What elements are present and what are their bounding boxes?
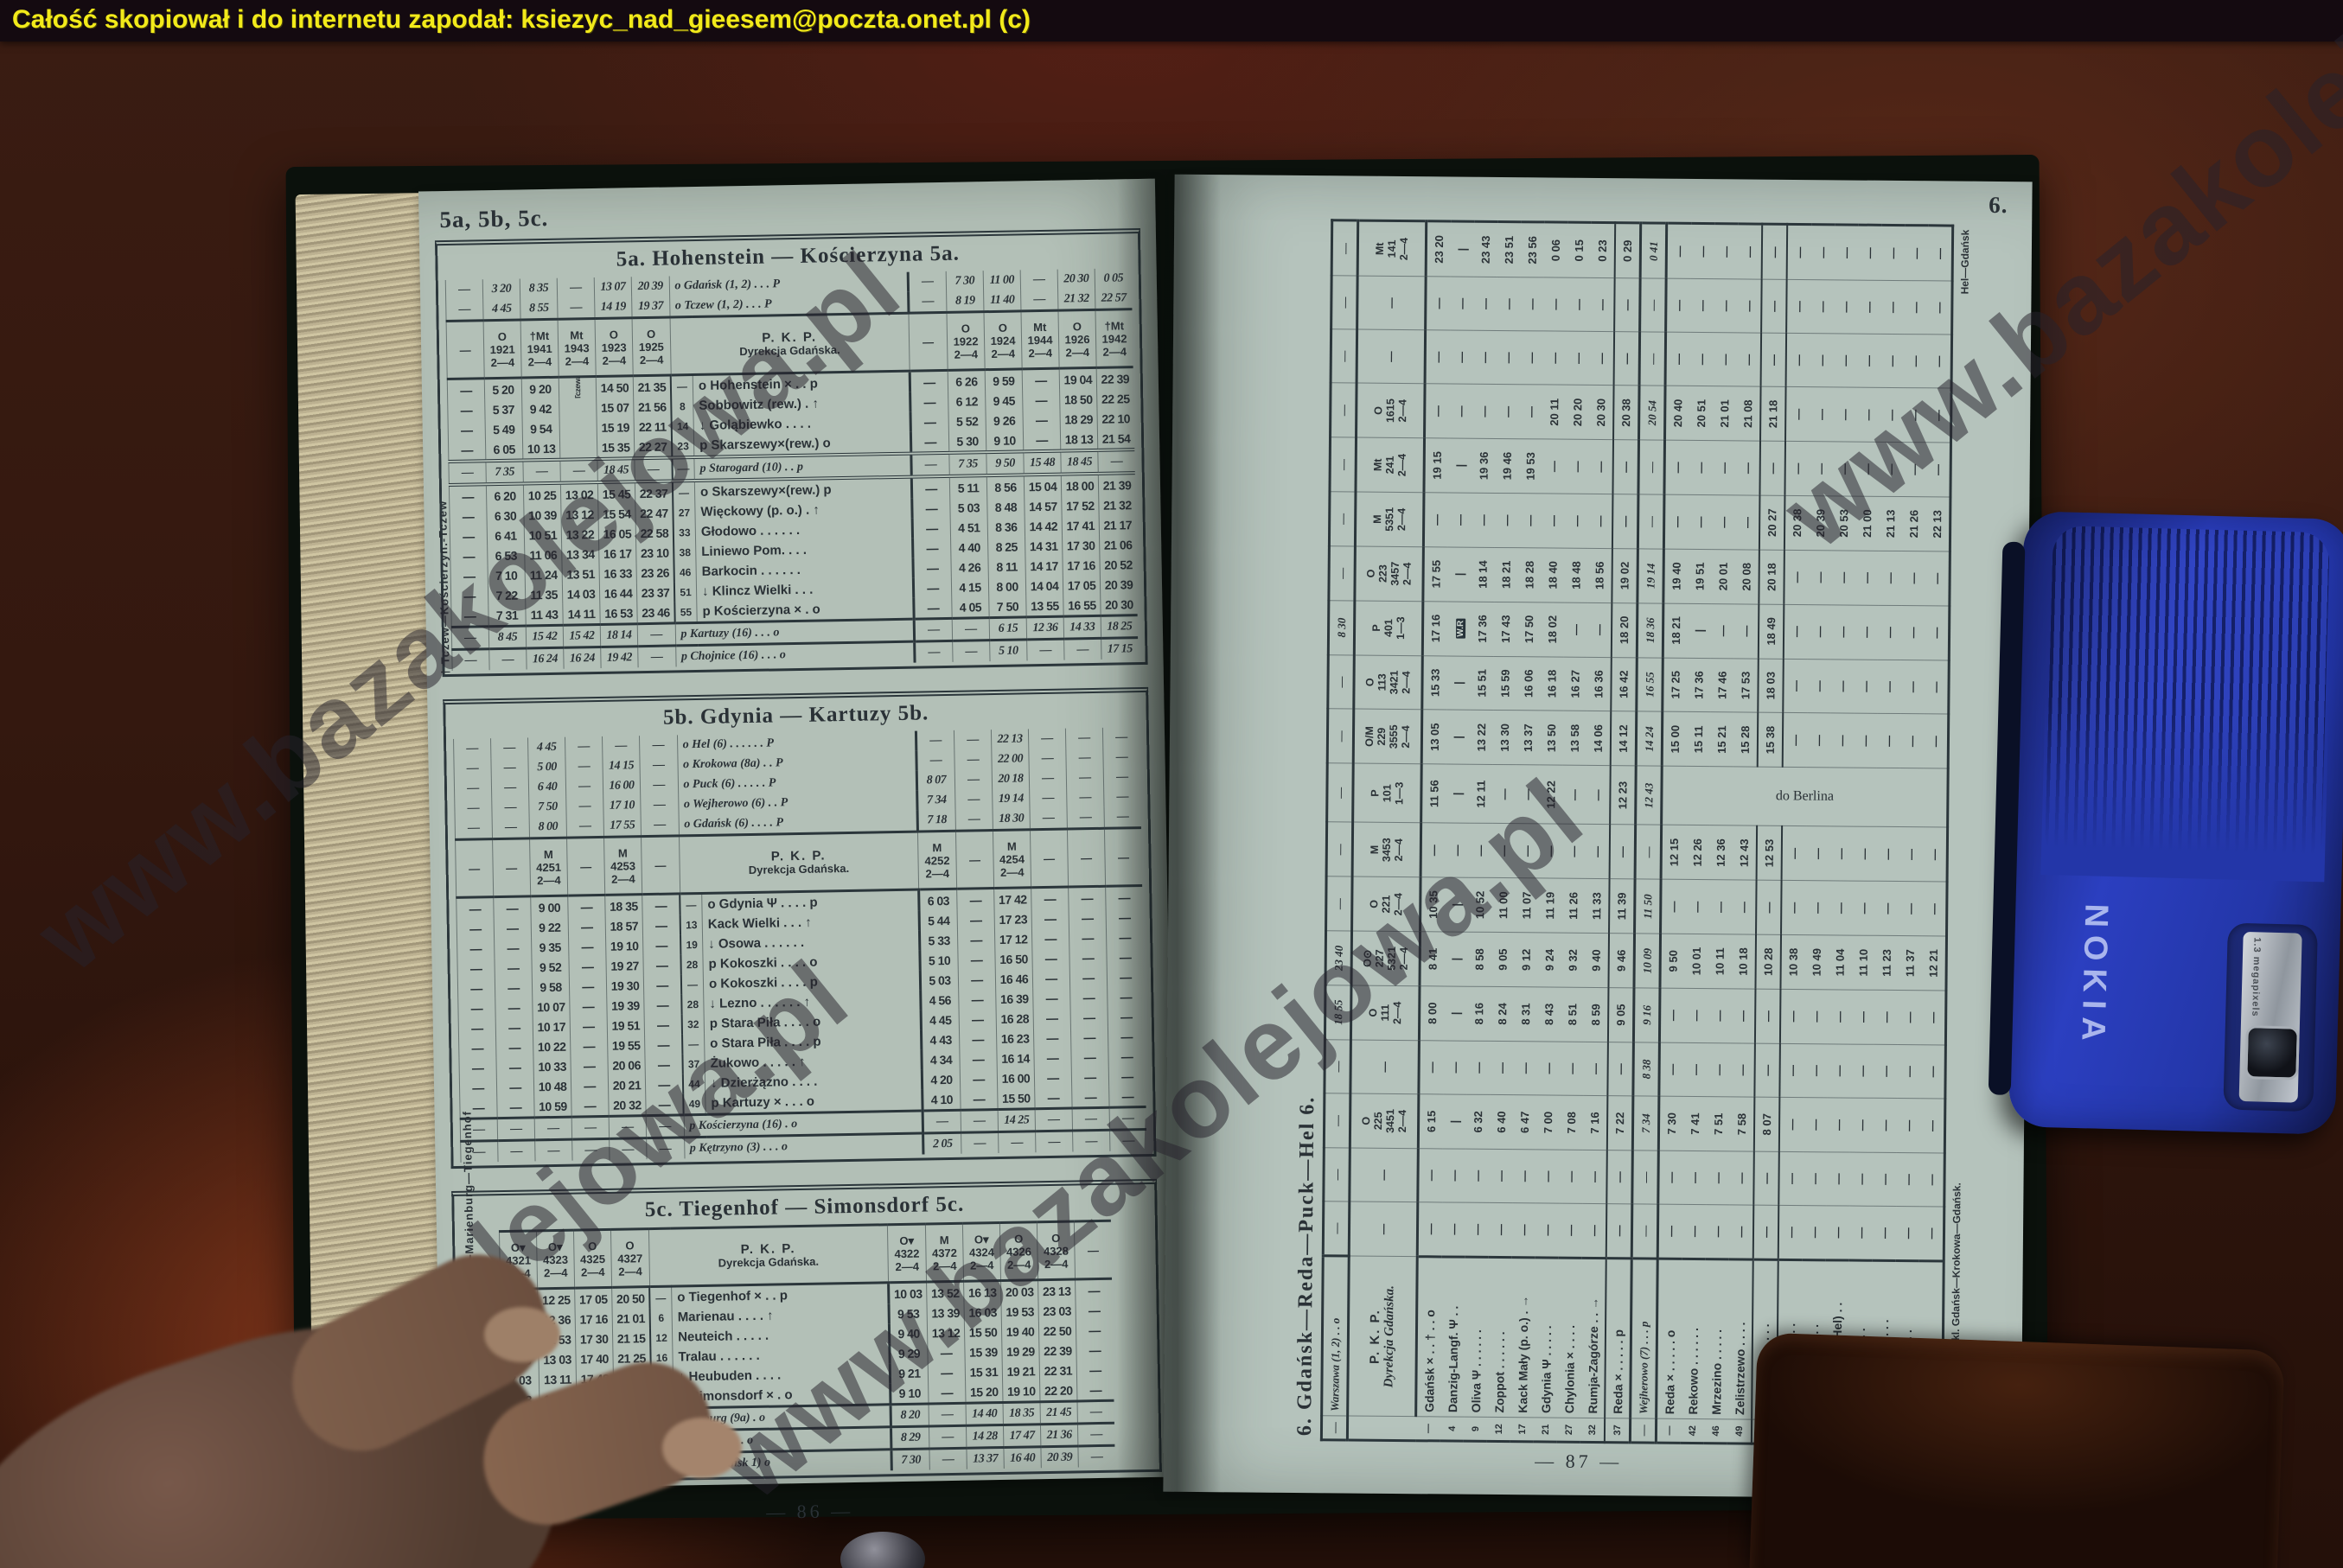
time-cell: — [1804, 990, 1829, 1044]
train-header-cell: — [1350, 1148, 1419, 1202]
time-cell: 15 31 [965, 1361, 1002, 1382]
time-cell: 17 41 [1062, 515, 1099, 536]
time-cell: 7 30 [891, 1449, 929, 1470]
time-cell: 17 42 [994, 888, 1031, 909]
time-cell: — [1808, 604, 1832, 659]
time-cell: — [1489, 1149, 1513, 1202]
time-cell: — [1327, 709, 1354, 763]
train-header-line: 4254 [994, 852, 1029, 866]
time-cell: 18 14 [1471, 547, 1495, 602]
train-header-line: O [612, 1239, 648, 1252]
time-cell: — [491, 757, 528, 778]
time-cell: — [638, 646, 676, 667]
time-cell: 20 30 [1057, 269, 1095, 290]
train-header-line: O [986, 321, 1020, 335]
time-cell: 23 43 [1474, 221, 1498, 277]
time-cell: — [1853, 826, 1877, 881]
time-cell: — [961, 1110, 998, 1133]
time-cell: — [1900, 660, 1925, 714]
time-cell: 8 07 [1754, 1097, 1780, 1151]
train-header-line: 1921 [485, 342, 520, 356]
time-cell: — [1927, 281, 1952, 335]
time-cell: — [1734, 604, 1759, 659]
time-cell: — [1064, 638, 1101, 660]
time-cell: — [448, 399, 485, 420]
train-header-line: 229 [1376, 710, 1389, 763]
time-cell: — [923, 1110, 961, 1133]
time-cell: 19 36 [1472, 438, 1496, 493]
time-cell: — [1635, 825, 1662, 879]
time-cell: — [957, 929, 994, 950]
train-header-line: O [948, 322, 983, 335]
time-cell: 6 40 [528, 777, 565, 798]
time-cell: 12 53 [1757, 825, 1783, 880]
train-header-cell: — [642, 836, 680, 895]
train-header-line: O▾ [889, 1233, 924, 1247]
time-cell: 11 40 [984, 290, 1021, 311]
time-cell: — [1708, 880, 1733, 934]
time-cell: — [999, 1131, 1036, 1153]
time-cell: — [1881, 225, 1906, 280]
time-cell: — [914, 618, 952, 641]
time-cell: — [1034, 1048, 1071, 1068]
train-header-line: 1941 [522, 341, 557, 355]
train-header-cell: †Mt19412—4 [520, 319, 559, 378]
time-cell: 5 52 [948, 411, 986, 431]
time-cell: — [1032, 968, 1069, 989]
table-6-margin-note: Hel—Gdańsk [1958, 230, 1971, 295]
time-cell: 9 12 [1514, 933, 1538, 987]
time-cell: | [1444, 986, 1468, 1041]
time-cell: 21 45 [1040, 1401, 1077, 1425]
time-cell: — [1877, 714, 1901, 768]
time-cell: 20 08 [1734, 550, 1759, 604]
km-cell: 51 [674, 582, 697, 602]
time-cell: — [1783, 659, 1808, 713]
km-cell: 21 [1534, 1418, 1557, 1442]
time-cell: — [1874, 1098, 1898, 1152]
time-cell: — [1784, 604, 1809, 659]
time-cell: 10 59 [534, 1096, 571, 1118]
time-cell: — [916, 730, 954, 751]
train-header-line: O [1364, 546, 1377, 600]
time-cell: — [1070, 987, 1108, 1008]
time-cell: — [1830, 713, 1855, 768]
km-cell: — [1630, 1418, 1656, 1443]
km-cell: 38 [674, 542, 696, 562]
time-cell: — [1588, 440, 1613, 494]
time-cell: 5 03 [950, 497, 987, 518]
time-cell: — [1738, 224, 1763, 279]
train-header-line: O [1372, 384, 1385, 437]
time-cell: — [1711, 603, 1735, 658]
time-cell: — [1778, 1151, 1804, 1205]
time-cell: z Tczewa [559, 376, 596, 398]
time-cell: — [1520, 331, 1544, 385]
time-cell: — [1331, 383, 1357, 437]
time-cell: — [449, 461, 486, 485]
time-cell: — [910, 411, 948, 432]
time-cell: — [908, 271, 946, 292]
time-cell: — [1779, 1043, 1804, 1098]
time-cell: 19 51 [607, 1015, 644, 1036]
time-cell: 18 00 [1061, 474, 1098, 496]
time-cell: — [643, 934, 681, 955]
time-cell: — [1031, 887, 1069, 908]
train-header-cell: O22334572—4 [1355, 546, 1424, 602]
time-cell: 18 21 [1494, 547, 1518, 602]
station-cell: Wejherowo (7) . . . p [1631, 1259, 1658, 1419]
station-cell: Gdańsk × . . † . . o [1416, 1257, 1442, 1418]
time-cell: 22 13 [1925, 497, 1950, 551]
time-cell: 0 41 [1640, 223, 1667, 278]
time-cell: — [1878, 605, 1902, 660]
train-header-line: 4253 [605, 859, 640, 873]
time-cell: — [1076, 1300, 1113, 1321]
train-header-line: Mt [1374, 222, 1387, 276]
train-header-cell: M42522—4 [917, 831, 956, 889]
time-cell: — [1786, 334, 1811, 387]
time-cell: 22 50 [1038, 1320, 1076, 1341]
time-cell: — [1690, 333, 1714, 386]
time-cell: — [566, 816, 603, 838]
time-cell: — [565, 776, 603, 797]
time-cell: — [1069, 967, 1107, 988]
time-cell: — [1029, 768, 1066, 789]
time-cell: 18 45 [1061, 450, 1098, 475]
time-cell: 13 50 [1540, 711, 1564, 765]
time-cell: — [1855, 605, 1879, 660]
time-cell: — [1756, 880, 1782, 934]
train-header-line: 2—4 [1396, 384, 1409, 437]
time-cell: — [1029, 749, 1066, 769]
time-cell: — [1735, 441, 1760, 495]
time-cell: — [1663, 494, 1689, 549]
time-cell: — [641, 814, 679, 836]
page-87-corner-label: 6. [1989, 192, 2008, 219]
time-cell: — [1022, 368, 1059, 390]
time-cell: — [1830, 659, 1855, 713]
time-cell: 19 14 [1638, 549, 1664, 603]
km-cell: — [1415, 1417, 1440, 1441]
time-cell: 21 15 [612, 1328, 650, 1348]
page-87-number: — 87 — [1492, 1450, 1665, 1474]
time-cell: 10 49 [1804, 935, 1829, 990]
train-header-line: 113 [1376, 655, 1389, 709]
time-cell: — [1426, 277, 1451, 330]
time-cell: 17 40 [576, 1348, 613, 1369]
time-cell: — [457, 958, 495, 978]
time-cell: 11 33 [1585, 879, 1610, 934]
time-cell: 10 48 [533, 1076, 571, 1097]
time-cell: 19 42 [601, 647, 638, 668]
time-cell: 12 23 [1610, 766, 1636, 825]
time-cell: 3 20 [482, 279, 520, 300]
time-cell: — [1657, 1204, 1682, 1259]
km-cell: — [681, 974, 704, 994]
train-header-line: O [485, 329, 520, 343]
time-cell: — [1682, 1151, 1707, 1204]
time-cell: 2 05 [923, 1132, 961, 1154]
time-cell: — [958, 969, 995, 990]
time-cell: 14 25 [998, 1109, 1035, 1132]
time-cell: 13 30 [1493, 711, 1517, 765]
time-cell: — [1850, 1044, 1874, 1099]
time-cell: 9 35 [532, 937, 569, 958]
time-cell: — [454, 778, 491, 799]
train-header-line: 3451 [1384, 1094, 1397, 1148]
time-cell: 19 51 [1688, 549, 1712, 603]
time-cell: — [1496, 385, 1520, 439]
time-cell: — [1735, 495, 1760, 550]
time-cell: — [1873, 1152, 1897, 1206]
time-cell: — [1066, 748, 1103, 768]
time-cell [559, 398, 597, 418]
hand-fingernail [662, 1418, 742, 1478]
time-cell: 10 33 [533, 1056, 571, 1077]
time-cell: — [1034, 1068, 1071, 1088]
time-cell: 17 55 [603, 815, 641, 837]
train-header-line: M [531, 847, 565, 861]
time-cell: — [1442, 1149, 1466, 1202]
hand-fingernail [484, 1307, 560, 1362]
train-header-cell: O19212—4 [483, 320, 521, 379]
time-cell: 21 08 [1736, 386, 1761, 441]
time-cell: 17 16 [575, 1309, 612, 1329]
time-cell: 6 03 [919, 889, 957, 910]
station-cell: Mrzezino . . . . . [1704, 1259, 1729, 1420]
time-cell: — [1023, 430, 1060, 452]
time-cell: — [1520, 277, 1544, 331]
time-cell: — [1582, 1150, 1607, 1203]
time-cell: — [911, 476, 949, 499]
time-cell: — [1730, 1043, 1755, 1098]
time-cell: — [1077, 1380, 1114, 1401]
time-cell: — [913, 558, 951, 578]
time-cell: — [1874, 990, 1899, 1044]
time-cell: — [954, 730, 991, 750]
time-cell: — [1666, 223, 1691, 278]
time-cell: 14 31 [1025, 536, 1063, 557]
train-header-line: M [994, 839, 1029, 853]
time-cell: 6 32 [1466, 1094, 1491, 1149]
time-cell: — [954, 769, 992, 790]
time-cell: — [1783, 713, 1808, 768]
time-cell: 9 42 [522, 398, 559, 419]
time-cell: — [1327, 763, 1354, 822]
time-cell: — [1732, 880, 1757, 934]
time-cell: 4 45 [483, 299, 520, 321]
time-cell: 16 18 [1540, 656, 1564, 711]
time-cell: 4 51 [950, 517, 987, 538]
time-cell: 16 39 [996, 988, 1033, 1009]
time-cell: — [1473, 330, 1497, 384]
time-cell: 8 55 [520, 298, 558, 320]
time-cell: — [456, 918, 494, 939]
km-cell: 9 [1464, 1418, 1487, 1442]
time-cell: — [1761, 333, 1787, 386]
agency-cell: P. K. P.Dyrekcja Gdańska. [648, 1225, 889, 1287]
time-cell: — [1535, 1203, 1560, 1258]
time-cell: — [1737, 279, 1762, 333]
time-cell: 17 12 [994, 928, 1031, 949]
time-cell: 16 24 [527, 647, 564, 669]
time-cell: 18 56 [1587, 548, 1612, 602]
time-cell: — [1714, 279, 1738, 333]
time-cell: — [911, 453, 949, 477]
time-cell: 22 13 [991, 729, 1028, 749]
time-cell: — [1590, 277, 1615, 331]
train-header-line: 3421 [1388, 655, 1401, 709]
time-cell: — [644, 1014, 682, 1035]
time-cell: — [448, 419, 485, 440]
train-header-line: 2—4 [522, 354, 557, 368]
time-cell: — [1920, 1044, 1945, 1099]
station-cell: Rekowo . . . . . . [1681, 1259, 1706, 1419]
time-cell: — [929, 1403, 966, 1426]
train-header-cell: — [567, 837, 605, 896]
time-cell: 17 52 [1062, 495, 1099, 516]
time-cell: — [1512, 1203, 1536, 1258]
time-cell: 15 33 [1422, 655, 1447, 710]
time-cell: 8 56 [986, 475, 1024, 497]
time-cell: — [1560, 1042, 1584, 1096]
time-cell: 18 02 [1541, 602, 1565, 657]
time-cell: 9 52 [532, 957, 569, 978]
time-cell: 9 10 [986, 430, 1023, 452]
time-cell: 14 24 [1636, 711, 1663, 766]
time-cell: 20 30 [1589, 386, 1614, 440]
time-cell: 12 43 [1636, 766, 1663, 825]
time-cell: — [1664, 440, 1689, 494]
time-cell: 8 30 [1328, 600, 1355, 654]
train-header-line: O [597, 328, 631, 341]
time-cell: — [1706, 1205, 1730, 1259]
time-cell: — [1899, 882, 1923, 936]
time-cell: 14 06 [1586, 711, 1612, 766]
time-cell: 19 04 [1059, 367, 1096, 389]
time-cell: — [1804, 1098, 1828, 1152]
time-cell: 14 33 [1063, 615, 1101, 639]
train-header-line: 2—4 [1401, 547, 1414, 601]
time-cell: 18 03 [1758, 659, 1784, 713]
time-cell: — [910, 370, 948, 392]
time-cell: — [912, 498, 950, 519]
time-cell: — [1069, 886, 1106, 908]
time-cell: 17 16 [1063, 555, 1100, 576]
time-cell: — [957, 889, 994, 910]
time-cell: — [569, 976, 606, 997]
time-cell: 13 55 [1026, 596, 1063, 617]
time-cell: 15 38 [1758, 713, 1784, 768]
time-cell: | [1688, 603, 1712, 658]
time-cell: 16 42 [1611, 657, 1637, 711]
time-cell: 9 54 [522, 418, 559, 439]
time-cell: — [1067, 807, 1104, 829]
time-cell: 19 30 [606, 975, 643, 996]
time-cell: 6 15 [989, 617, 1026, 641]
time-cell: 10 07 [533, 997, 570, 1017]
train-header-line: 401 [1382, 602, 1395, 655]
time-cell: 15 04 [1024, 475, 1061, 497]
time-cell: — [1614, 278, 1640, 332]
time-cell: — [602, 736, 639, 756]
time-cell: 8 48 [987, 496, 1025, 517]
time-cell: — [1067, 787, 1104, 808]
time-cell: — [1803, 1151, 1827, 1205]
train-header-line: 1—3 [1393, 764, 1406, 822]
time-cell: 23 56 [1521, 222, 1545, 277]
time-cell: 16 53 [600, 602, 637, 624]
time-cell: 17 36 [1687, 658, 1711, 712]
station-cell: Warszawa (1, 2) . . o [1322, 1256, 1350, 1417]
time-cell: — [447, 379, 484, 400]
time-cell: — [1804, 1043, 1828, 1098]
time-cell: — [1588, 494, 1613, 548]
time-cell: — [1714, 224, 1739, 279]
train-header-cell: — [1030, 829, 1068, 888]
time-cell: 8 59 [1584, 987, 1609, 1042]
time-cell: — [496, 1076, 533, 1097]
train-header-line: 225 [1372, 1094, 1385, 1148]
time-cell: — [454, 738, 491, 759]
time-cell: — [495, 997, 533, 1017]
time-cell: 4 45 [921, 1010, 959, 1030]
time-cell: — [1070, 1007, 1108, 1028]
time-cell: — [1324, 1093, 1350, 1148]
time-cell: — [1787, 224, 1812, 279]
train-header-cell: M42542—4 [993, 830, 1031, 889]
time-cell: 0 15 [1567, 222, 1592, 277]
time-cell: — [1543, 277, 1567, 331]
time-cell: — [1784, 550, 1809, 604]
time-cell: 9 05 [1491, 933, 1515, 987]
km-cell: 46 [1704, 1419, 1727, 1444]
time-cell: 9 05 [1608, 988, 1634, 1042]
agency-cell: P. K. P.Dyrekcja Gdańska. [1348, 1256, 1418, 1417]
time-cell: 18 30 [993, 808, 1030, 830]
time-cell: 19 46 [1495, 439, 1519, 494]
time-cell: — [640, 755, 678, 775]
train-header-line: 1923 [597, 341, 631, 354]
train-header-cell: O19242—4 [984, 311, 1022, 370]
time-cell: 14 57 [1025, 496, 1062, 517]
time-cell: — [952, 618, 989, 641]
time-cell: — [1033, 1028, 1070, 1049]
time-cell: — [929, 1448, 967, 1469]
time-cell: — [454, 758, 491, 779]
time-cell: — [1683, 1042, 1708, 1097]
time-cell: — [570, 996, 607, 1017]
time-cell: 14 50 [596, 376, 633, 398]
time-cell: 9 50 [986, 451, 1024, 475]
train-header-line: 1922 [948, 335, 983, 348]
time-cell: — [1033, 988, 1070, 1009]
train-header-cell: O22534512—4 [1350, 1093, 1419, 1148]
km-cell: 13 [680, 915, 703, 934]
table-5b-frame: 5b. Gdynia — Kartuzy 5b. ——4 45———o Hel … [443, 687, 1156, 1169]
time-cell: — [1590, 332, 1615, 386]
time-cell: 11 26 [1561, 878, 1586, 933]
time-cell: 9 45 [986, 390, 1023, 411]
km-cell: 4 [1440, 1417, 1464, 1441]
time-cell: 9 32 [1561, 933, 1585, 987]
time-cell: 19 40 [1663, 549, 1689, 603]
time-cell: 6 26 [948, 370, 985, 392]
time-cell: 9 59 [985, 369, 1022, 391]
time-cell: — [495, 977, 532, 998]
time-cell: — [459, 1057, 496, 1078]
